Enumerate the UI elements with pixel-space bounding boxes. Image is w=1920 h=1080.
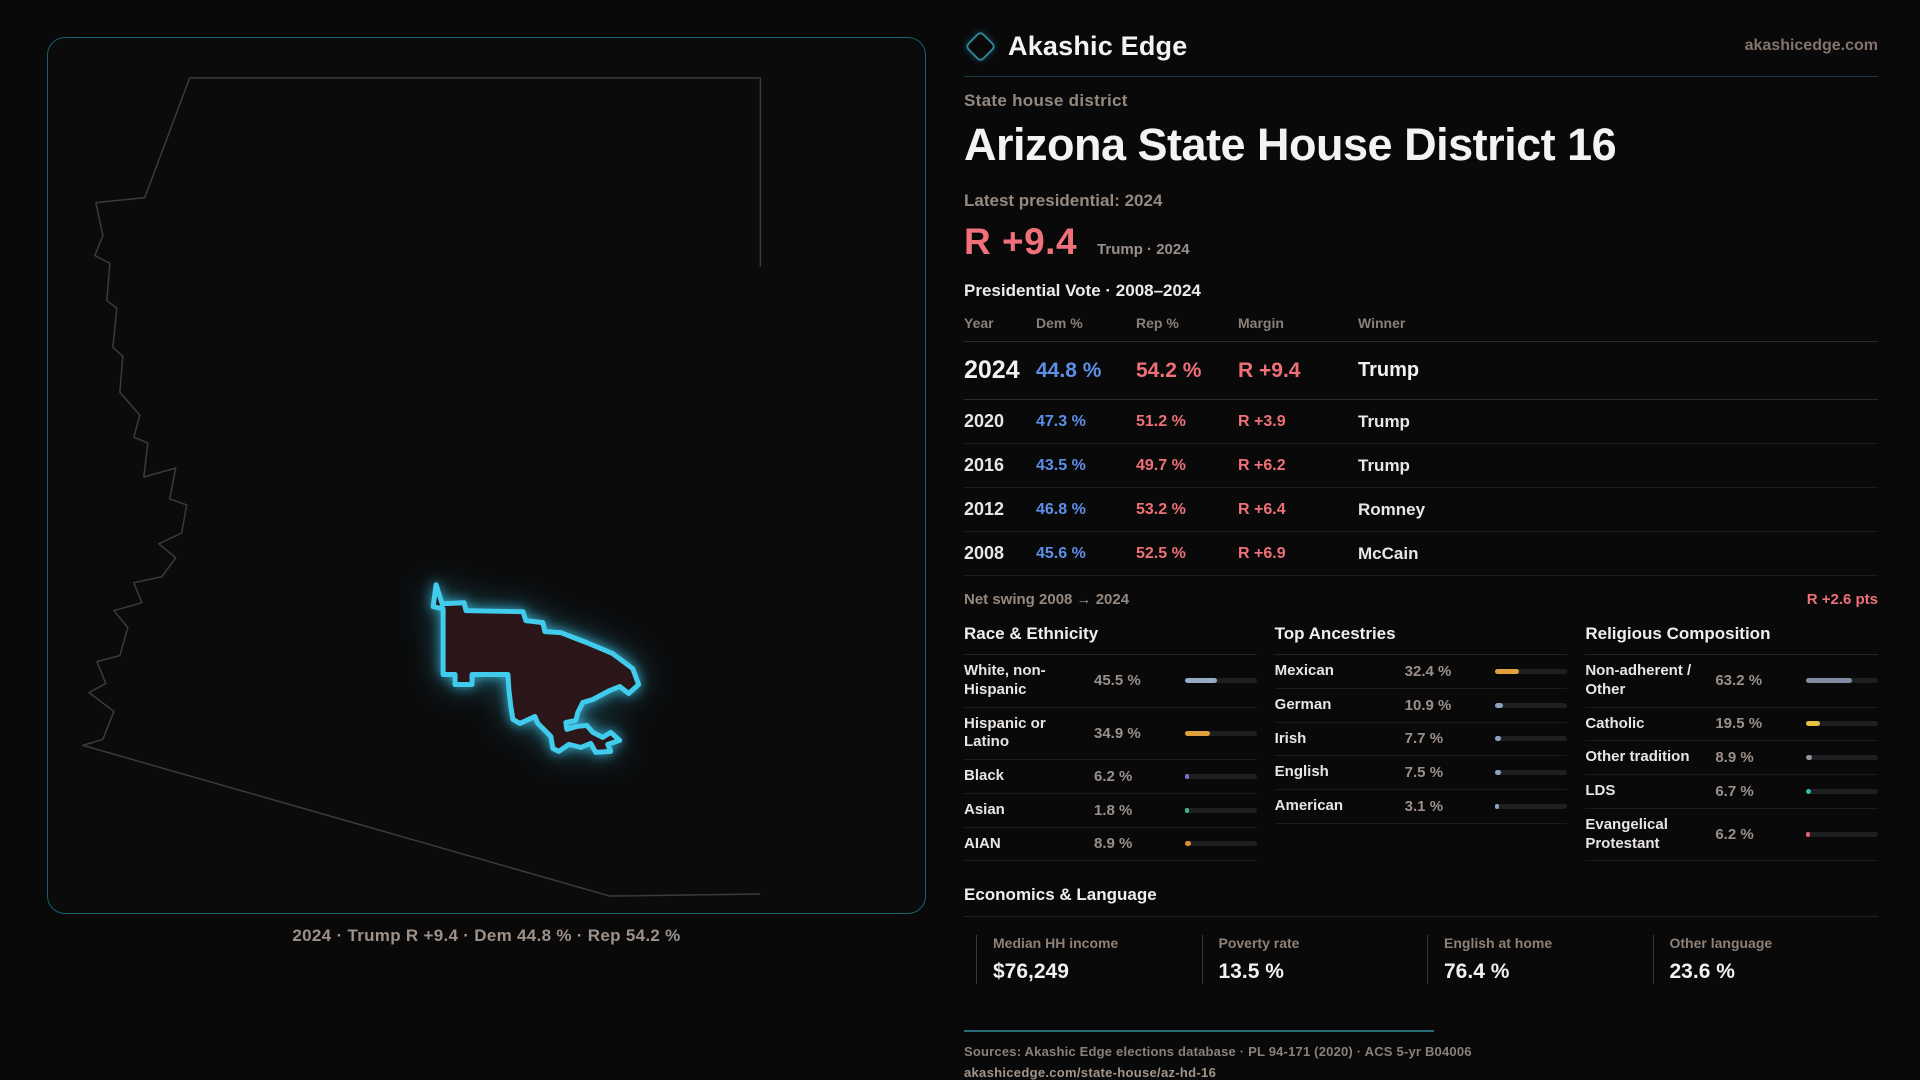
stat-bar-row: Irish7.7 % — [1275, 723, 1568, 757]
cell-year: 2016 — [964, 455, 1036, 476]
cell-rep: 52.5 % — [1136, 545, 1238, 563]
stat-bar-fill — [1185, 678, 1218, 683]
cell-dem: 46.8 % — [1036, 501, 1136, 519]
economic-stat-label: English at home — [1444, 935, 1653, 951]
economic-stat: Median HH income$76,249 — [976, 935, 1202, 984]
cell-margin: R +6.2 — [1238, 457, 1358, 475]
cell-margin: R +6.9 — [1238, 545, 1358, 563]
stat-bar-value: 63.2 % — [1715, 672, 1771, 689]
stat-bar-fill — [1185, 774, 1189, 779]
stat-bar-fill — [1806, 755, 1812, 760]
stat-bar-label: American — [1275, 797, 1405, 816]
net-swing-label: Net swing 2008 → 2024 — [964, 591, 1129, 608]
stat-bar-row: White, non-Hispanic45.5 % — [964, 655, 1257, 708]
stat-bar-track — [1806, 678, 1878, 683]
cell-margin: R +6.4 — [1238, 501, 1358, 519]
stat-bar-label: White, non-Hispanic — [964, 662, 1094, 700]
cell-rep: 53.2 % — [1136, 501, 1238, 519]
demographics-section: Race & EthnicityWhite, non-Hispanic45.5 … — [964, 624, 1878, 861]
brand-domain-link[interactable]: akashicedge.com — [1745, 37, 1878, 55]
cell-year: 2008 — [964, 543, 1036, 564]
cell-dem: 43.5 % — [1036, 457, 1136, 475]
brand-name: Akashic Edge — [1008, 31, 1187, 62]
stat-bar-label: Hispanic or Latino — [964, 715, 1094, 753]
stat-bar-label: Asian — [964, 801, 1094, 820]
stat-bar-value: 34.9 % — [1094, 725, 1150, 742]
economics-title: Economics & Language — [964, 885, 1878, 917]
stat-bar-row: Black6.2 % — [964, 760, 1257, 794]
cell-rep: 49.7 % — [1136, 457, 1238, 475]
column-header-rep: Rep % — [1136, 315, 1238, 331]
sources-text: Sources: Akashic Edge elections database… — [964, 1044, 1878, 1059]
stat-bar-row: American3.1 % — [1275, 790, 1568, 824]
vote-table-title: Presidential Vote · 2008–2024 — [964, 281, 1878, 301]
stat-bar-label: LDS — [1585, 782, 1715, 801]
table-row: 201643.5 %49.7 %R +6.2Trump — [964, 444, 1878, 488]
economic-stat: Poverty rate13.5 % — [1202, 935, 1428, 984]
map-caption: 2024 · Trump R +9.4 · Dem 44.8 % · Rep 5… — [47, 926, 926, 946]
economic-stat-value: 13.5 % — [1219, 960, 1428, 984]
demographic-panel: Race & EthnicityWhite, non-Hispanic45.5 … — [964, 624, 1257, 861]
cell-winner: Trump — [1358, 412, 1878, 432]
stat-bar-value: 45.5 % — [1094, 672, 1150, 689]
arizona-outline — [83, 78, 760, 896]
diamond-icon — [964, 30, 997, 63]
stat-bar-track — [1185, 841, 1257, 846]
economic-stat-label: Poverty rate — [1219, 935, 1428, 951]
stat-bar-value: 7.7 % — [1405, 730, 1461, 747]
economic-stat-value: 23.6 % — [1670, 960, 1879, 984]
panel-title: Religious Composition — [1585, 624, 1878, 655]
stat-bar-fill — [1495, 703, 1503, 708]
stat-bar-fill — [1806, 721, 1820, 726]
stat-bar-fill — [1185, 808, 1189, 813]
stat-bar-value: 19.5 % — [1715, 715, 1771, 732]
net-swing-row: Net swing 2008 → 2024 R +2.6 pts — [964, 591, 1878, 608]
latest-margin-note: Trump · 2024 — [1097, 241, 1190, 258]
stat-bar-fill — [1806, 832, 1810, 837]
panel-title: Race & Ethnicity — [964, 624, 1257, 655]
stat-bar-row: Catholic19.5 % — [1585, 708, 1878, 742]
stat-bar-track — [1806, 755, 1878, 760]
cell-dem: 47.3 % — [1036, 413, 1136, 431]
stat-bar-value: 32.4 % — [1405, 663, 1461, 680]
column-header-year: Year — [964, 315, 1036, 331]
stat-bar-label: Other tradition — [1585, 748, 1715, 767]
stat-bar-value: 6.2 % — [1094, 768, 1150, 785]
stat-bar-value: 6.2 % — [1715, 826, 1771, 843]
economics-stats: Median HH income$76,249Poverty rate13.5 … — [976, 935, 1878, 984]
stat-bar-value: 1.8 % — [1094, 802, 1150, 819]
cell-margin: R +9.4 — [1238, 359, 1358, 383]
stat-bar-row: Other tradition8.9 % — [1585, 741, 1878, 775]
demographic-panel: Top AncestriesMexican32.4 %German10.9 %I… — [1275, 624, 1568, 861]
latest-margin-value: R +9.4 — [964, 221, 1077, 263]
stat-bar-row: Evangelical Protestant6.2 % — [1585, 809, 1878, 862]
stat-bar-row: AIAN8.9 % — [964, 828, 1257, 862]
stat-bar-label: Mexican — [1275, 662, 1405, 681]
stat-bar-value: 6.7 % — [1715, 783, 1771, 800]
report-panel: Akashic Edge akashicedge.com State house… — [964, 26, 1878, 1080]
stat-bar-fill — [1185, 841, 1191, 846]
economic-stat: Other language23.6 % — [1653, 935, 1879, 984]
cell-dem: 45.6 % — [1036, 545, 1136, 563]
cell-rep: 54.2 % — [1136, 359, 1238, 383]
cell-year: 2024 — [964, 356, 1036, 385]
stat-bar-row: Hispanic or Latino34.9 % — [964, 708, 1257, 761]
map-panel — [47, 37, 926, 914]
cell-winner: Romney — [1358, 500, 1878, 520]
stat-bar-row: Mexican32.4 % — [1275, 655, 1568, 689]
vote-table-header: YearDem %Rep %MarginWinner — [964, 315, 1878, 342]
economic-stat-label: Median HH income — [993, 935, 1202, 951]
stat-bar-row: English7.5 % — [1275, 756, 1568, 790]
stat-bar-label: Black — [964, 767, 1094, 786]
permalink[interactable]: akashicedge.com/state-house/az-hd-16 — [964, 1065, 1878, 1080]
economic-stat-label: Other language — [1670, 935, 1879, 951]
stat-bar-value: 8.9 % — [1094, 835, 1150, 852]
economic-stat-value: $76,249 — [993, 960, 1202, 984]
panel-title: Top Ancestries — [1275, 624, 1568, 655]
stat-bar-label: Irish — [1275, 730, 1405, 749]
stat-bar-fill — [1185, 731, 1210, 736]
economic-stat: English at home76.4 % — [1427, 935, 1653, 984]
vote-table: YearDem %Rep %MarginWinner 202444.8 %54.… — [964, 315, 1878, 576]
arizona-map — [48, 38, 925, 913]
stat-bar-value: 7.5 % — [1405, 764, 1461, 781]
header-divider — [964, 76, 1878, 77]
stat-bar-value: 10.9 % — [1405, 697, 1461, 714]
latest-margin-row: R +9.4 Trump · 2024 — [964, 221, 1878, 263]
stat-bar-fill — [1495, 669, 1518, 674]
stat-bar-label: German — [1275, 696, 1405, 715]
net-swing-value: R +2.6 pts — [1807, 591, 1878, 608]
column-header-margin: Margin — [1238, 315, 1358, 331]
stat-bar-row: LDS6.7 % — [1585, 775, 1878, 809]
stat-bar-fill — [1495, 736, 1501, 741]
stat-bar-track — [1806, 789, 1878, 794]
stat-bar-track — [1185, 731, 1257, 736]
stat-bar-track — [1495, 703, 1567, 708]
stat-bar-fill — [1495, 804, 1499, 809]
stat-bar-track — [1806, 721, 1878, 726]
stat-bar-row: Non-adherent / Other63.2 % — [1585, 655, 1878, 708]
stat-bar-value: 8.9 % — [1715, 749, 1771, 766]
footer-divider — [964, 1030, 1434, 1032]
stat-bar-row: German10.9 % — [1275, 689, 1568, 723]
cell-winner: McCain — [1358, 544, 1878, 564]
table-row: 200845.6 %52.5 %R +6.9McCain — [964, 532, 1878, 576]
stat-bar-row: Asian1.8 % — [964, 794, 1257, 828]
district-16-shape[interactable] — [433, 585, 639, 753]
latest-presidential-label: Latest presidential: 2024 — [964, 191, 1878, 211]
cell-year: 2020 — [964, 411, 1036, 432]
column-header-dem: Dem % — [1036, 315, 1136, 331]
economic-stat-value: 76.4 % — [1444, 960, 1653, 984]
stat-bar-label: Non-adherent / Other — [1585, 662, 1715, 700]
stat-bar-track — [1806, 832, 1878, 837]
stat-bar-fill — [1495, 770, 1500, 775]
page-title: Arizona State House District 16 — [964, 119, 1878, 171]
cell-winner: Trump — [1358, 359, 1878, 382]
stat-bar-value: 3.1 % — [1405, 798, 1461, 815]
stat-bar-fill — [1806, 678, 1852, 683]
demographic-panel: Religious CompositionNon-adherent / Othe… — [1585, 624, 1878, 861]
cell-rep: 51.2 % — [1136, 413, 1238, 431]
stat-bar-track — [1495, 804, 1567, 809]
stat-bar-track — [1185, 774, 1257, 779]
stat-bar-label: Evangelical Protestant — [1585, 816, 1715, 854]
vote-table-body: 202444.8 %54.2 %R +9.4Trump202047.3 %51.… — [964, 342, 1878, 576]
stat-bar-label: AIAN — [964, 835, 1094, 854]
district-kicker: State house district — [964, 91, 1878, 111]
stat-bar-label: Catholic — [1585, 715, 1715, 734]
cell-year: 2012 — [964, 499, 1036, 520]
stat-bar-track — [1495, 736, 1567, 741]
table-row: 202047.3 %51.2 %R +3.9Trump — [964, 400, 1878, 444]
header: Akashic Edge akashicedge.com — [964, 26, 1878, 66]
stat-bar-fill — [1806, 789, 1811, 794]
cell-margin: R +3.9 — [1238, 413, 1358, 431]
stat-bar-label: English — [1275, 763, 1405, 782]
stat-bar-track — [1185, 678, 1257, 683]
stat-bar-track — [1495, 770, 1567, 775]
column-header-winner: Winner — [1358, 315, 1878, 331]
stat-bar-track — [1185, 808, 1257, 813]
stat-bar-track — [1495, 669, 1567, 674]
cell-dem: 44.8 % — [1036, 359, 1136, 383]
table-row: 201246.8 %53.2 %R +6.4Romney — [964, 488, 1878, 532]
table-row: 202444.8 %54.2 %R +9.4Trump — [964, 342, 1878, 400]
cell-winner: Trump — [1358, 456, 1878, 476]
